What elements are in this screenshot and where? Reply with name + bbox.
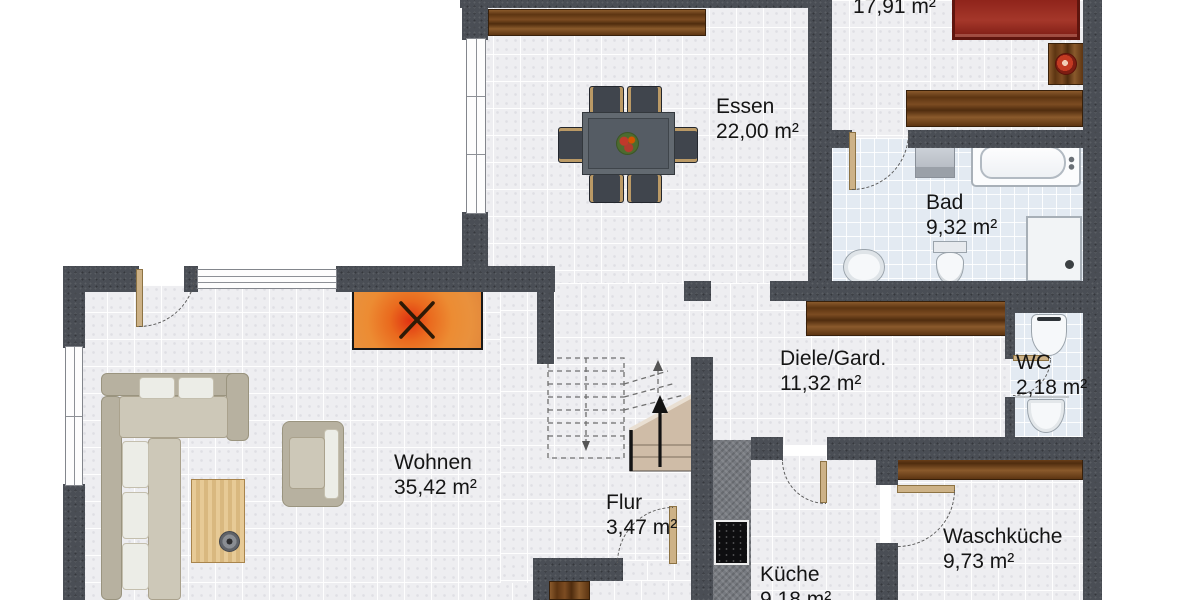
window-mullion [476,39,477,213]
bathtub-basin [980,146,1066,179]
coffee-table [191,479,245,563]
room-label-bath: Bad 9,32 m² [926,190,997,240]
wall [462,212,488,274]
room-name: WC [1016,350,1087,375]
room-area: 2,18 m² [1016,375,1087,400]
wall [184,266,198,292]
wall [537,266,554,364]
fireplace-x-icon [394,299,440,341]
bedside-lamp-icon [1055,53,1077,75]
hall-wardrobe [806,301,1006,336]
room-name: Wohnen [394,450,477,475]
wall [808,0,832,301]
fireplace [352,291,483,350]
room-area: 35,42 m² [394,475,477,500]
wall [751,437,783,460]
wall [533,558,549,600]
door-leaf [897,485,955,493]
wall [691,357,713,600]
sofa-cushion [139,377,175,399]
room-name: Küche [760,562,831,587]
wall [684,281,711,301]
sofa-cushion [122,492,149,539]
room-name: Bad [926,190,997,215]
room-area: 9,18 m² [760,587,831,600]
staircase [540,353,693,478]
wall [63,484,85,600]
wall [336,266,476,292]
window-divider [467,96,485,97]
bedroom-wardrobe [906,90,1083,127]
room-name: Flur [606,490,677,515]
window-divider [66,416,82,417]
door-leaf [849,132,856,190]
armchair-cushion [289,437,325,489]
room-label-laundry: Waschküche 9,73 m² [943,524,1062,574]
dining-chair [671,127,698,163]
sofa-cushion [178,377,214,399]
bidet [843,249,885,285]
dining-chair [589,174,624,203]
sofa-armrest [226,373,249,441]
wall [876,543,898,600]
wall [63,266,85,348]
shower-drain-icon [1065,260,1074,269]
room-name: Essen [716,94,799,119]
door-leaf [136,269,143,327]
wall [908,130,1085,148]
window [197,269,337,289]
door-leaf [820,461,827,503]
floor-plan: 17,91 m² Essen 22,00 m² Bad 9,32 m² Diel… [0,0,1200,600]
wall [1005,281,1100,313]
dining-chair [589,86,624,115]
window [466,38,486,214]
room-name: Diele/Gard. [780,346,886,371]
dining-chair [627,86,662,115]
sofa-cushion [122,543,149,590]
room-area: 9,73 m² [943,549,1062,574]
room-area: 17,91 m² [853,0,936,19]
sofa-seat [148,438,181,600]
wall [1005,313,1015,359]
room-label-hall: Diele/Gard. 11,32 m² [780,346,886,396]
dining-chair [627,174,662,203]
room-label-kitchen: Küche 9,18 m² [760,562,831,600]
room-name: Waschküche [943,524,1062,549]
bowl-icon [219,531,240,552]
window [65,346,83,486]
room-area: 11,32 m² [780,371,886,396]
dining-chair [558,127,585,163]
faucet-icon [1067,156,1076,170]
sofa-cushion [122,441,149,488]
window-divider [467,154,485,155]
room-label-dining: Essen 22,00 m² [716,94,799,144]
dining-sideboard [488,9,706,36]
wall [827,437,1100,460]
room-area: 3,47 m² [606,515,677,540]
window-pane-line [198,282,336,283]
small-cabinet [549,581,590,600]
nightstand [1048,43,1084,85]
bed [952,0,1080,40]
room-label-bedroom: 17,91 m² [853,0,936,19]
room-area: 22,00 m² [716,119,799,144]
wc-toilet-seat-line [1037,317,1061,321]
wall [462,0,488,40]
room-label-flur: Flur 3,47 m² [606,490,677,540]
room-label-living: Wohnen 35,42 m² [394,450,477,500]
wall [460,0,832,8]
flower-centerpiece [616,132,639,155]
shower [1026,216,1082,282]
armchair-back [324,429,339,499]
wall [876,460,898,485]
room-area: 9,32 m² [926,215,997,240]
room-label-wc: WC 2,18 m² [1016,350,1087,400]
window-pane-line [198,276,336,277]
stove [714,520,749,565]
sofa-seat [119,396,228,438]
